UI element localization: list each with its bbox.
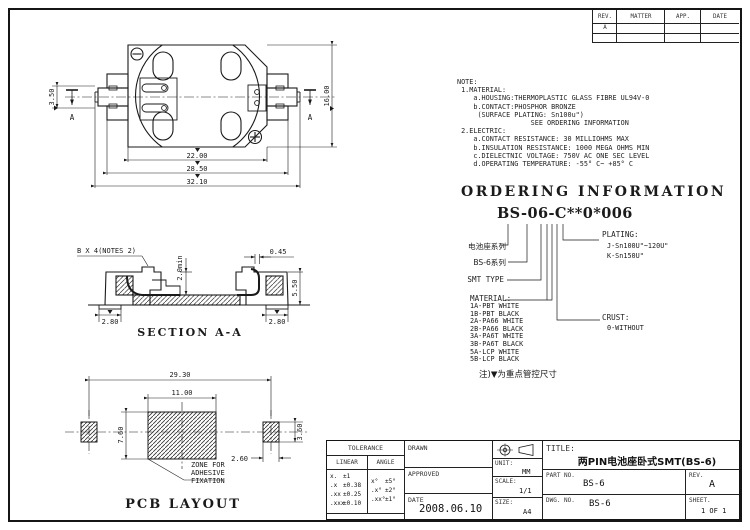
dim-pad-height: 3.60 <box>296 424 304 441</box>
smt-type-label: SMT TYPE <box>460 275 504 284</box>
dim-pad-right: 2.80 <box>269 318 286 326</box>
part-no-label: PART NO. <box>546 472 575 479</box>
positive-contact <box>248 85 266 111</box>
right-wall-hatch <box>266 276 283 295</box>
section-letter-right: A <box>308 113 313 122</box>
section-title: SECTION A-A <box>137 326 243 339</box>
unit-label: UNIT: <box>495 460 513 467</box>
family-label: BS-6系列 <box>462 257 506 268</box>
date-value: 2008.06.10 <box>419 503 482 515</box>
crust-option: 0-WITHOUT <box>607 325 644 333</box>
size-value: A4 <box>523 508 531 516</box>
dim-height: 16.00 <box>323 85 331 106</box>
size-label: SIZE: <box>495 499 513 506</box>
dim-tabs: 28.50 <box>186 165 207 173</box>
zone-label-1: ZONE FOR <box>191 461 226 469</box>
holder-body-outline <box>128 45 267 147</box>
scale-value: 1/1 <box>519 487 532 495</box>
section-marker-right <box>304 90 316 105</box>
note-block: NOTE: 1.MATERIAL: a.HOUSING:THERMOPLASTI… <box>457 78 649 168</box>
callout-b4: B X 4(NOTES 2) <box>77 247 136 255</box>
plating-option-j: J-Sn100U"~120U" <box>607 243 668 251</box>
pcb-layout-drawing: 29.30 11.00 7.60 3.60 2.60 ZONE FOR ADHE… <box>45 368 335 520</box>
dim-thickness: 0.45 <box>270 248 287 256</box>
section-letter-left: A <box>70 113 75 122</box>
dwg-no-label: DWG. NO. <box>546 497 575 504</box>
tolerance-title: TOLERANCE <box>327 444 404 452</box>
matter-header: MATTER <box>616 10 665 24</box>
rev-value: A <box>709 479 715 490</box>
zone-label-3: FIXATION <box>191 477 225 485</box>
scale-label: SCALE: <box>495 478 517 485</box>
plus-symbol <box>249 131 262 144</box>
plating-option-k: K-Sn150U" <box>607 253 644 261</box>
dwg-no-value: BS-6 <box>589 499 611 509</box>
dim-zone-width: 11.00 <box>171 389 192 397</box>
dim-overall: 32.10 <box>186 178 207 186</box>
dim-terminal: 3.50 <box>48 89 56 106</box>
app-header: APP. <box>664 10 701 24</box>
dim-body: 22.00 <box>186 152 207 160</box>
unit-value: MM <box>522 468 530 476</box>
spring-contact <box>140 78 177 120</box>
battery-circle <box>136 34 260 158</box>
dim-pad-width: 2.60 <box>231 455 248 463</box>
left-wall-hatch <box>116 276 133 295</box>
step-outline <box>152 280 180 295</box>
drawn-label: DRAWN <box>408 444 428 452</box>
slot-nw <box>153 52 173 80</box>
projection-symbol <box>495 443 540 457</box>
crust-title: CRUST: <box>602 313 629 322</box>
rev-header: REV. <box>592 10 617 24</box>
angle-label: ANGLE <box>367 459 404 466</box>
top-view-drawing: A A 3.50 16.00 22.00 28.50 32.10 <box>30 20 450 220</box>
control-dimension-note: 注)▼为重点管控尺寸 <box>479 368 557 380</box>
series-label: 电池座系列 <box>452 241 506 252</box>
part-no-value: BS-6 <box>583 479 605 489</box>
revision-table: REV. MATTER APP. DATE A <box>592 10 738 42</box>
drawing-sheet: REV. MATTER APP. DATE A NOTE: 1.MATERIAL… <box>0 0 750 530</box>
approved-label: APPROVED <box>408 470 439 478</box>
minus-symbol <box>131 48 143 60</box>
dim-min-height: 2.0min <box>176 255 184 280</box>
ordering-heading: ORDERING INFORMATION <box>461 184 726 200</box>
base-strip <box>133 295 240 305</box>
date-header: DATE <box>700 10 739 24</box>
dim-pcb-overall: 29.30 <box>169 371 190 379</box>
pcb-title: PCB LAYOUT <box>125 497 241 512</box>
left-pad <box>99 305 121 309</box>
rev-label: REV. <box>689 472 703 479</box>
slot-ne <box>221 52 241 80</box>
plating-title: PLATING: <box>602 230 639 239</box>
right-contact <box>237 269 259 295</box>
slot-se <box>221 112 241 140</box>
sheet-value: 1 OF 1 <box>701 507 726 515</box>
title-value: 两PIN电池座卧式SMT(BS-6) <box>567 453 727 468</box>
sheet-label: SHEET. <box>689 497 711 504</box>
dim-section-height: 5.50 <box>291 280 299 297</box>
left-contact <box>127 276 180 295</box>
dim-zone-height: 7.60 <box>117 427 125 444</box>
right-pad <box>266 305 288 309</box>
title-block: TOLERANCE LINEAR ANGLE x.±1 .x±0.38 .xx±… <box>326 440 740 520</box>
material-5b: 5B-LCP BLACK <box>470 356 519 364</box>
section-view-drawing: B X 4(NOTES 2) 0.45 2.0min 5.50 2.80 2.8… <box>30 230 340 348</box>
slot-sw <box>153 112 173 140</box>
zone-label-2: ADHESIVE <box>191 469 225 477</box>
linear-label: LINEAR <box>327 459 367 466</box>
section-marker-left <box>66 90 78 105</box>
title-label: TITLE: <box>546 444 575 453</box>
dim-pad-left: 2.80 <box>102 318 119 326</box>
